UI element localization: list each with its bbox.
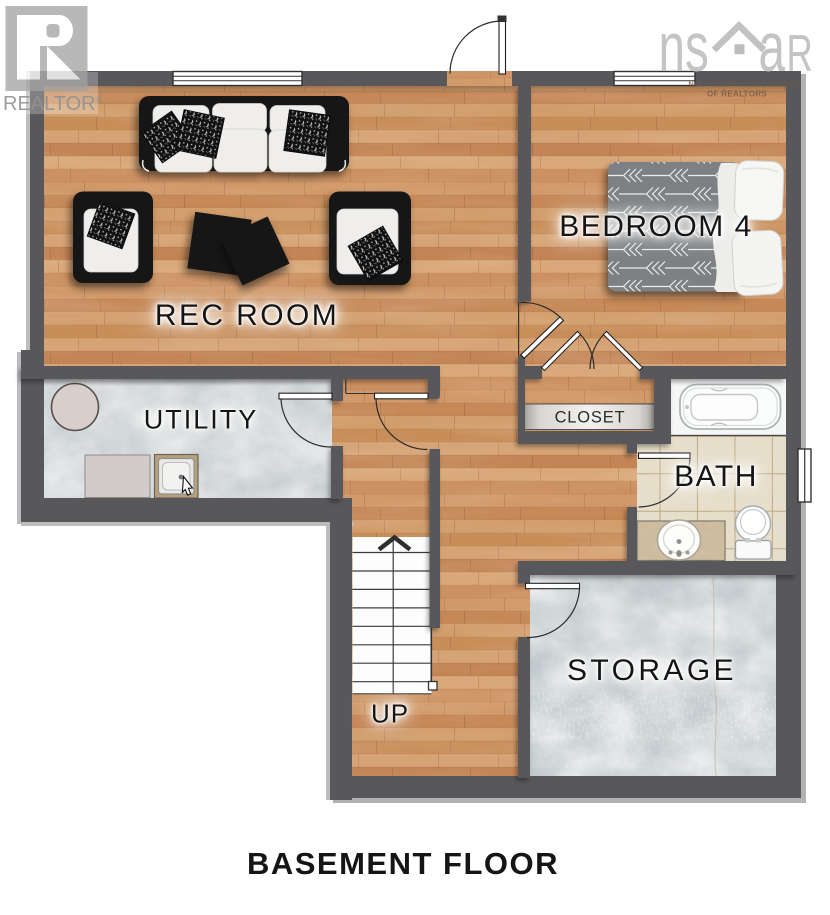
svg-text:ns: ns xyxy=(659,8,709,86)
svg-text:a: a xyxy=(759,8,786,86)
svg-text:R: R xyxy=(787,23,813,82)
